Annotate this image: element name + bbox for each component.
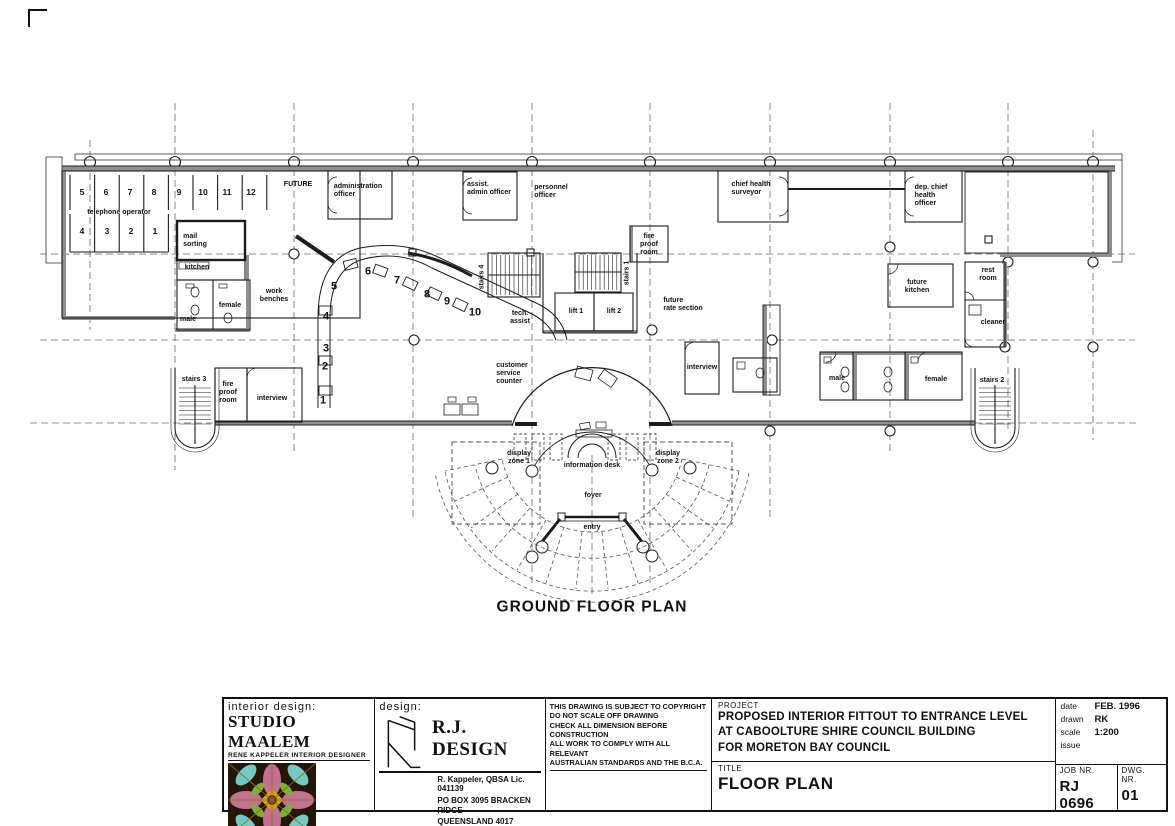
drawing-caption: GROUND FLOOR PLAN (497, 599, 688, 615)
booth-number: 2 (129, 227, 134, 236)
grid-lines (30, 103, 1140, 596)
studio-name: STUDIO MAALEM (228, 712, 370, 752)
project-line1: PROPOSED INTERIOR FITTOUT TO ENTRANCE LE… (718, 710, 1050, 725)
drawn-value: RK (1094, 714, 1108, 725)
room-label-kitchen: kitchen (185, 264, 210, 272)
counter-number: 2 (322, 362, 328, 373)
counter-number: 1 (320, 396, 326, 407)
booth-number: 9 (177, 188, 182, 197)
booth-number: 12 (246, 188, 255, 197)
room-label-entry: entry (583, 524, 600, 532)
room-label-interview-left: interview (257, 395, 287, 403)
room-label-rest-room: rest room (979, 267, 997, 283)
note-line: ALL WORK TO COMPLY WITH ALL RELEVANT (550, 739, 707, 758)
design-firm-name: R.J. DESIGN (432, 717, 541, 770)
room-label-administration-officer: administration officer (334, 183, 382, 199)
booth-number: 10 (198, 188, 207, 197)
project-label: PROJECT (718, 701, 1050, 710)
note-line: AUSTRALIAN STANDARDS AND THE B.C.A. (550, 758, 707, 767)
counter-number: 9 (444, 297, 450, 308)
booth-number: 4 (80, 227, 85, 236)
counter-number: 7 (394, 276, 400, 287)
counter-number: 3 (323, 344, 329, 355)
counter-number: 10 (469, 308, 481, 319)
room-label-male-right: male (829, 375, 845, 383)
design-address-line1: PO BOX 3095 BRACKEN RIDGE (437, 796, 540, 817)
booth-number: 3 (105, 227, 110, 236)
note-line: DO NOT SCALE OFF DRAWING (550, 711, 707, 720)
issue-label: issue (1060, 740, 1094, 750)
note-line: THIS DRAWING IS SUBJECT TO COPYRIGHT (550, 702, 707, 711)
room-label-dep-chief-health-officer: dep. chief health officer (915, 184, 948, 208)
counter-number: 8 (424, 290, 430, 301)
room-label-foyer: foyer (584, 492, 601, 500)
room-label-customer-service-counter: customer service counter (496, 362, 528, 386)
project-line3: FOR MORETON BAY COUNCIL (718, 741, 1050, 756)
room-label-fire-proof-centre: fire proof room (640, 233, 658, 257)
dwg-nr-label: DWG. NR. (1121, 766, 1163, 784)
booth-number: 11 (223, 188, 232, 197)
room-label-lift-2: lift 2 (607, 308, 621, 316)
counter-number: 6 (365, 267, 371, 278)
rj-design-logo (379, 713, 430, 771)
room-label-fire-proof-left: fire proof room (219, 381, 237, 405)
room-label-stairs-2: stairs 2 (980, 377, 1005, 385)
room-label-interview-centre: interview (687, 364, 717, 372)
room-label-lift-1: lift 1 (569, 308, 583, 316)
room-label-display-zone-1: display zone 1 (507, 450, 531, 466)
date-value: FEB. 1996 (1094, 701, 1139, 712)
room-label-stairs-3: stairs 3 (182, 376, 207, 384)
counter-number: 4 (323, 312, 329, 323)
project-line2: AT CABOOLTURE SHIRE COUNCIL BUILDING (718, 725, 1050, 740)
drawn-label: drawn (1060, 714, 1094, 725)
design-address-line2: QUEENSLAND 4017 (437, 817, 540, 826)
room-label-personnel-officer: personnel officer (534, 184, 567, 200)
job-nr-value: RJ 0696 (1059, 778, 1114, 812)
title-label: TITLE (718, 764, 1050, 773)
notes-panel: THIS DRAWING IS SUBJECT TO COPYRIGHT DO … (546, 699, 712, 810)
room-label-female-right: female (925, 376, 947, 384)
booth-number: 5 (80, 188, 85, 197)
room-label-future-rate-section: future rate section (663, 297, 702, 313)
booth-number: 7 (128, 188, 133, 197)
booth-number: 6 (104, 188, 109, 197)
room-label-tech-assist: tech. assist (510, 310, 530, 326)
design-credential: R. Kappeler, QBSA Lic. 041139 (437, 775, 540, 793)
project-panel: PROJECT PROPOSED INTERIOR FITTOUT TO ENT… (712, 699, 1057, 810)
building-walls (46, 154, 1122, 452)
note-line: CHECK ALL DIMENSION BEFORE CONSTRUCTION (550, 721, 707, 740)
job-nr-label: JOB NR. (1059, 766, 1114, 775)
dwg-nr-value: 01 (1121, 787, 1163, 804)
room-label-information-desk: information desk (564, 462, 620, 470)
studio-subtitle: RENE KAPPELER INTERIOR DESIGNER (228, 752, 370, 761)
booth-number: 1 (153, 227, 158, 236)
scanned-floor-plan-page: telephone operator FUTURE administration… (0, 0, 1175, 826)
scale-label: scale (1060, 727, 1094, 738)
drawing-title: FLOOR PLAN (718, 774, 1050, 794)
counter-number: 5 (331, 282, 337, 293)
booth-number: 8 (152, 188, 157, 197)
room-label-future: FUTURE (284, 181, 312, 189)
room-label-chief-health-surveyor: chief health surveyor (732, 181, 771, 197)
room-label-display-zone-2: display zone 2 (656, 450, 680, 466)
meta-panel: date FEB. 1996 drawn RK scale 1:200 issu… (1056, 699, 1166, 810)
room-label-female-left: female (219, 302, 241, 310)
design-heading: design: (379, 701, 540, 713)
room-label-stairs-1: stairs 1 (624, 261, 631, 286)
room-label-mail-sorting: mail sorting (183, 233, 207, 249)
room-label-cleaner: cleaner (981, 319, 1006, 327)
room-label-work-benches: work benches (260, 288, 288, 304)
studio-maalem-logo (228, 763, 316, 826)
room-label-stairs-4: stairs 4 (479, 265, 486, 290)
interior-design-panel: interior design: STUDIO MAALEM RENE KAPP… (224, 699, 375, 810)
date-label: date (1060, 701, 1094, 712)
room-label-telephone-operator: telephone operator (87, 209, 150, 217)
room-label-male-left: male (180, 316, 196, 324)
design-panel: design: R.J. DESIGN R. Kappeler, QBSA Li… (375, 699, 545, 810)
title-block: interior design: STUDIO MAALEM RENE KAPP… (222, 697, 1168, 812)
room-label-future-kitchen: future kitchen (905, 279, 930, 295)
room-label-assist-admin-officer: assist. admin officer (467, 181, 511, 197)
scale-value: 1:200 (1094, 727, 1118, 738)
